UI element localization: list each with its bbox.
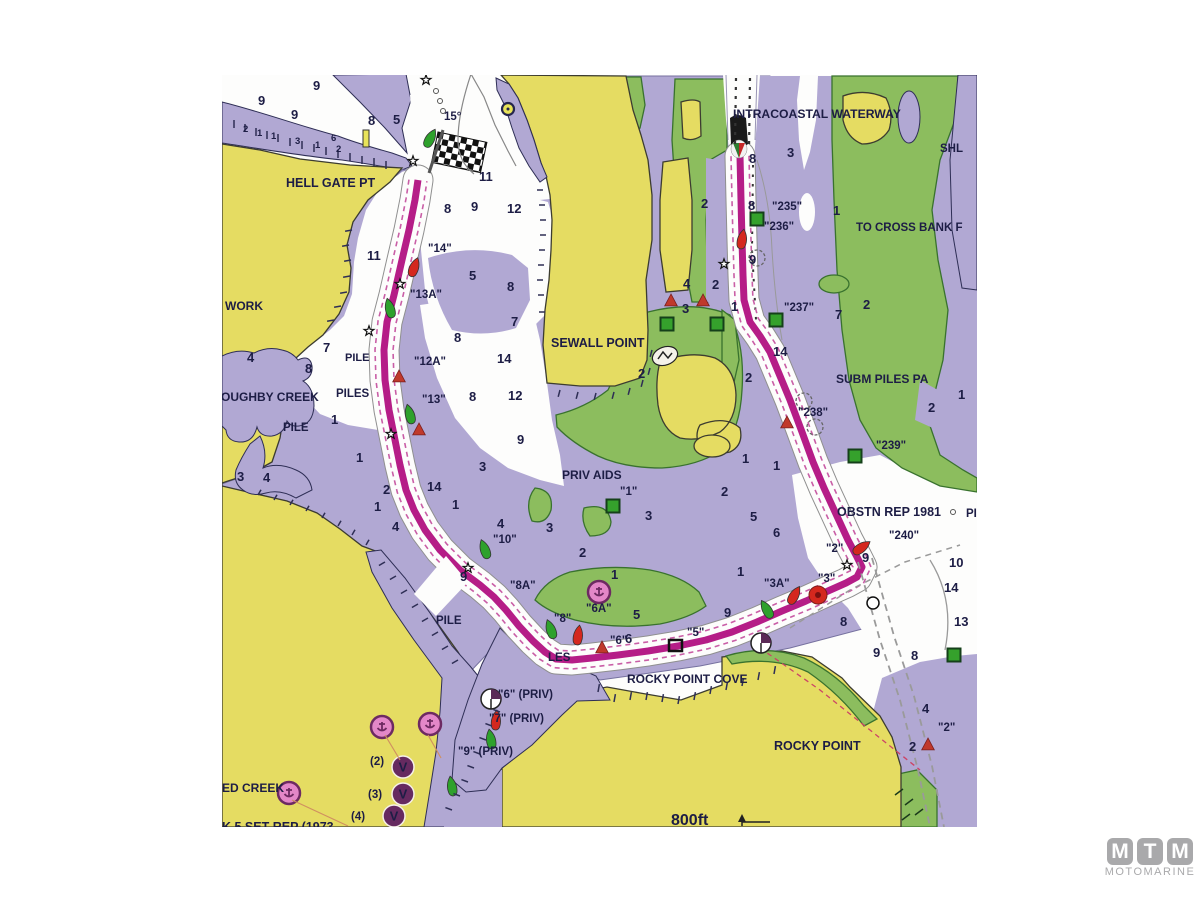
svg-text:"9" (PRIV): "9" (PRIV) <box>458 746 513 758</box>
svg-text:5: 5 <box>469 268 476 283</box>
svg-text:4: 4 <box>497 516 505 531</box>
svg-text:(2): (2) <box>370 756 384 768</box>
svg-text:1: 1 <box>452 497 459 512</box>
svg-text:2: 2 <box>579 545 586 560</box>
svg-text:14: 14 <box>773 344 788 359</box>
svg-text:"5": "5" <box>687 627 704 639</box>
svg-text:"238": "238" <box>798 407 828 419</box>
svg-text:9: 9 <box>724 605 731 620</box>
svg-text:1: 1 <box>315 140 321 151</box>
svg-text:6: 6 <box>773 525 780 540</box>
svg-text:"13": "13" <box>422 394 446 406</box>
svg-text:12: 12 <box>508 388 522 403</box>
svg-text:"236": "236" <box>764 221 794 233</box>
svg-text:11: 11 <box>479 169 493 184</box>
svg-text:3: 3 <box>295 136 300 147</box>
svg-text:5: 5 <box>633 607 640 622</box>
svg-text:4: 4 <box>263 470 271 485</box>
svg-text:8: 8 <box>749 151 756 166</box>
svg-text:ED CREEK: ED CREEK <box>222 781 284 795</box>
svg-text:5: 5 <box>750 509 757 524</box>
svg-text:14: 14 <box>497 351 512 366</box>
svg-text:8: 8 <box>444 201 451 216</box>
svg-text:2: 2 <box>701 196 708 211</box>
svg-text:2: 2 <box>638 366 645 381</box>
svg-text:ROCKY POINT: ROCKY POINT <box>774 739 861 753</box>
svg-text:3: 3 <box>645 508 652 523</box>
svg-text:12: 12 <box>507 201 521 216</box>
svg-text:2: 2 <box>336 144 341 155</box>
svg-text:1: 1 <box>958 387 965 402</box>
svg-text:3: 3 <box>787 145 794 160</box>
svg-text:5: 5 <box>393 112 400 127</box>
svg-text:INTRACOASTAL WATERWAY: INTRACOASTAL WATERWAY <box>733 107 901 121</box>
svg-text:1: 1 <box>331 412 338 427</box>
svg-text:"13A": "13A" <box>410 289 442 301</box>
svg-text:1: 1 <box>271 131 277 142</box>
svg-text:(4): (4) <box>351 811 365 823</box>
svg-text:9: 9 <box>258 93 265 108</box>
svg-text:2: 2 <box>928 400 935 415</box>
svg-text:2: 2 <box>243 124 248 135</box>
svg-text:3: 3 <box>546 520 553 535</box>
svg-text:1: 1 <box>737 564 744 579</box>
svg-text:2: 2 <box>745 370 752 385</box>
svg-text:7: 7 <box>835 307 842 322</box>
svg-text:SEWALL POINT: SEWALL POINT <box>551 336 645 350</box>
svg-text:"3": "3" <box>818 573 835 585</box>
svg-text:"2": "2" <box>938 722 955 734</box>
svg-text:8: 8 <box>368 113 375 128</box>
svg-text:SUBM PILES PA: SUBM PILES PA <box>836 372 929 386</box>
svg-text:2: 2 <box>712 277 719 292</box>
svg-text:3: 3 <box>237 469 244 484</box>
svg-text:4: 4 <box>247 350 255 365</box>
svg-text:"8A": "8A" <box>510 580 536 592</box>
svg-text:K 5 SET REP (1973: K 5 SET REP (1973 <box>222 820 334 827</box>
svg-text:8: 8 <box>305 361 312 376</box>
svg-text:11: 11 <box>367 248 381 263</box>
svg-text:9: 9 <box>471 199 478 214</box>
svg-text:1: 1 <box>773 458 780 473</box>
svg-text:7: 7 <box>323 340 330 355</box>
svg-text:1: 1 <box>742 451 749 466</box>
svg-text:3: 3 <box>479 459 486 474</box>
svg-text:8: 8 <box>911 648 918 663</box>
svg-text:3: 3 <box>682 301 689 316</box>
svg-text:1: 1 <box>731 299 738 314</box>
svg-text:1: 1 <box>833 203 840 218</box>
svg-text:"235": "235" <box>772 201 802 213</box>
svg-text:8: 8 <box>469 389 476 404</box>
svg-text:V: V <box>399 760 408 775</box>
svg-text:4: 4 <box>392 519 400 534</box>
svg-text:V: V <box>399 787 408 802</box>
svg-text:(3): (3) <box>368 789 382 801</box>
svg-text:2: 2 <box>909 739 916 754</box>
svg-text:"2": "2" <box>826 543 843 555</box>
svg-text:PILE: PILE <box>345 352 369 364</box>
svg-text:"6" (PRIV): "6" (PRIV) <box>498 689 553 701</box>
svg-text:2: 2 <box>863 297 870 312</box>
svg-text:13: 13 <box>954 614 968 629</box>
svg-text:10: 10 <box>949 555 963 570</box>
svg-text:PILE: PILE <box>283 422 309 434</box>
svg-text:SHL: SHL <box>940 143 963 155</box>
svg-text:HELL GATE PT: HELL GATE PT <box>286 176 375 190</box>
svg-text:800ft: 800ft <box>671 812 709 827</box>
svg-text:"10": "10" <box>493 534 517 546</box>
svg-text:4: 4 <box>683 276 691 291</box>
svg-text:9: 9 <box>873 645 880 660</box>
svg-text:WORK: WORK <box>225 299 263 313</box>
svg-text:OBSTN REP 1981: OBSTN REP 1981 <box>837 505 941 519</box>
svg-text:2: 2 <box>383 482 390 497</box>
svg-text:8: 8 <box>840 614 847 629</box>
svg-text:9: 9 <box>862 550 869 565</box>
svg-text:"239": "239" <box>876 440 906 452</box>
svg-text:TO CROSS BANK F: TO CROSS BANK F <box>856 222 963 234</box>
svg-text:14: 14 <box>944 580 959 595</box>
svg-text:ROCKY POINT COVE: ROCKY POINT COVE <box>627 672 747 686</box>
svg-text:PRIV AIDS: PRIV AIDS <box>562 468 622 482</box>
svg-text:15°: 15° <box>444 111 462 123</box>
svg-text:"6A": "6A" <box>586 603 612 615</box>
svg-text:9: 9 <box>313 78 320 93</box>
svg-text:"12A": "12A" <box>414 356 446 368</box>
svg-text:V: V <box>390 809 399 824</box>
svg-text:9: 9 <box>291 107 298 122</box>
svg-text:PILES: PILES <box>336 388 370 400</box>
svg-text:8: 8 <box>507 279 514 294</box>
svg-text:PI: PI <box>966 508 977 520</box>
svg-text:1: 1 <box>374 499 381 514</box>
svg-text:"240": "240" <box>889 530 919 542</box>
svg-text:OUGHBY CREEK: OUGHBY CREEK <box>222 390 319 404</box>
svg-text:1: 1 <box>611 567 618 582</box>
svg-text:PILE: PILE <box>436 615 462 627</box>
svg-text:14: 14 <box>427 479 442 494</box>
svg-text:"14": "14" <box>428 243 452 255</box>
svg-text:9: 9 <box>517 432 524 447</box>
svg-text:8: 8 <box>454 330 461 345</box>
svg-text:2: 2 <box>721 484 728 499</box>
svg-text:4: 4 <box>922 701 930 716</box>
svg-text:"8": "8" <box>554 613 571 625</box>
svg-text:8: 8 <box>748 198 755 213</box>
svg-text:"3A": "3A" <box>764 578 790 590</box>
svg-text:LES: LES <box>548 652 571 664</box>
svg-text:9: 9 <box>460 569 467 584</box>
svg-text:"1": "1" <box>620 486 637 498</box>
svg-text:7: 7 <box>511 314 518 329</box>
svg-text:9: 9 <box>749 252 756 267</box>
svg-text:1: 1 <box>257 128 263 139</box>
svg-text:"7" (PRIV): "7" (PRIV) <box>489 713 544 725</box>
svg-text:6: 6 <box>331 133 336 144</box>
svg-text:1: 1 <box>356 450 363 465</box>
svg-text:"237": "237" <box>784 302 814 314</box>
svg-text:6: 6 <box>625 631 632 646</box>
